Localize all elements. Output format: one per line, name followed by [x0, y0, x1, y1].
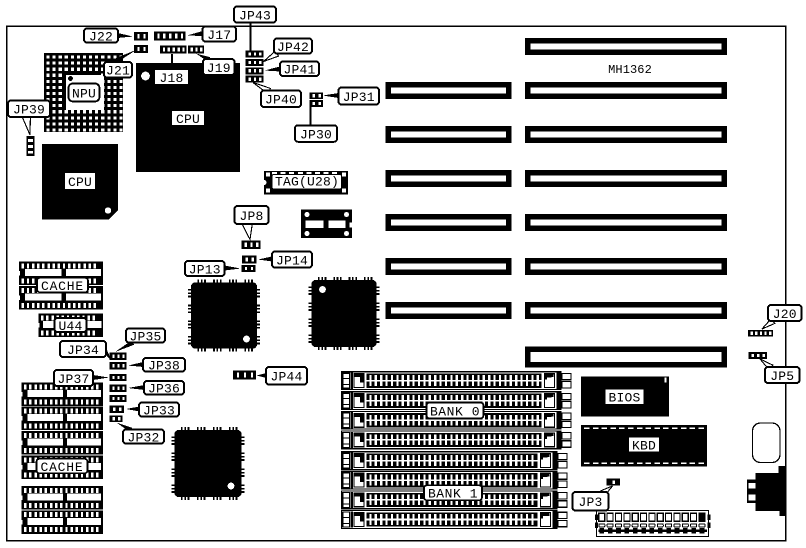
svg-text:JP35: JP35 [129, 329, 161, 344]
svg-text:BANK 0: BANK 0 [430, 404, 480, 419]
svg-text:JP5: JP5 [770, 369, 794, 384]
svg-text:JP44: JP44 [270, 370, 302, 385]
svg-text:JP41: JP41 [283, 63, 315, 78]
svg-text:J18: J18 [159, 71, 183, 86]
svg-text:JP3: JP3 [578, 495, 602, 510]
svg-text:JP13: JP13 [189, 262, 221, 277]
svg-text:TAG(U28): TAG(U28) [275, 175, 339, 190]
svg-text:U44: U44 [58, 319, 82, 334]
svg-text:JP37: JP37 [57, 372, 89, 387]
svg-text:CACHE: CACHE [40, 460, 83, 475]
svg-text:CPU: CPU [68, 175, 92, 190]
svg-text:J20: J20 [773, 307, 797, 322]
svg-text:J21: J21 [106, 64, 130, 79]
svg-text:JP39: JP39 [13, 103, 45, 118]
svg-text:JP8: JP8 [239, 209, 263, 224]
svg-text:JP42: JP42 [277, 40, 309, 55]
svg-text:BIOS: BIOS [608, 391, 640, 406]
svg-text:JP32: JP32 [127, 430, 159, 445]
svg-text:JP31: JP31 [343, 90, 375, 105]
svg-text:JP43: JP43 [239, 8, 271, 23]
svg-text:J17: J17 [207, 28, 231, 43]
svg-text:JP33: JP33 [143, 403, 175, 418]
svg-text:BANK 1: BANK 1 [428, 487, 478, 502]
svg-text:JP40: JP40 [265, 93, 297, 108]
svg-text:JP30: JP30 [300, 127, 332, 142]
svg-text:J19: J19 [207, 61, 231, 76]
svg-text:NPU: NPU [72, 86, 96, 101]
svg-text:CPU: CPU [176, 112, 200, 127]
svg-text:JP14: JP14 [276, 253, 308, 268]
svg-text:KBD: KBD [632, 438, 656, 453]
svg-text:JP38: JP38 [148, 359, 180, 374]
svg-text:J22: J22 [89, 29, 113, 44]
svg-text:CACHE: CACHE [41, 279, 84, 294]
svg-text:JP36: JP36 [148, 382, 180, 397]
svg-text:MH1362: MH1362 [608, 63, 652, 77]
svg-text:JP34: JP34 [67, 343, 99, 358]
